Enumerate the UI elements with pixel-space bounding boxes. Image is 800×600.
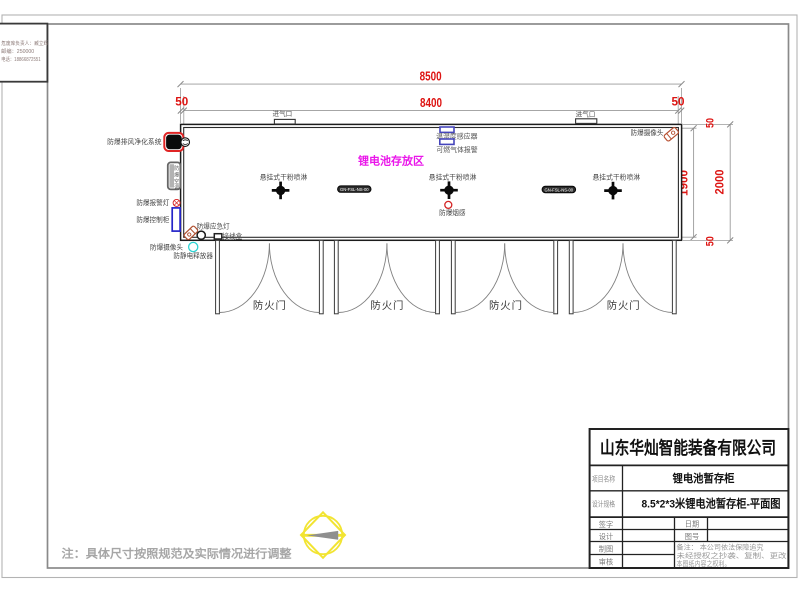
svg-text:设计规格: 设计规格 xyxy=(592,499,616,508)
svg-text:防爆报警灯: 防爆报警灯 xyxy=(136,198,169,207)
svg-text:50: 50 xyxy=(175,95,188,109)
svg-text:调: 调 xyxy=(174,184,179,191)
svg-text:防爆应急灯: 防爆应急灯 xyxy=(197,221,230,230)
svg-text:防: 防 xyxy=(174,165,179,172)
svg-text:危废库负责人：臧立辉: 危废库负责人：臧立辉 xyxy=(1,40,48,47)
svg-text:悬挂式干粉喷淋: 悬挂式干粉喷淋 xyxy=(429,173,477,182)
svg-text:审核: 审核 xyxy=(599,557,613,566)
svg-text:进气口: 进气口 xyxy=(576,110,596,119)
svg-text:备注： 本公司依法保障追究: 备注： 本公司依法保障追究 xyxy=(677,543,764,552)
svg-text:50: 50 xyxy=(672,95,685,109)
svg-text:防爆控制柜: 防爆控制柜 xyxy=(136,215,169,224)
svg-text:锂电池暂存柜: 锂电池暂存柜 xyxy=(673,471,735,485)
svg-text:悬挂式干粉喷淋: 悬挂式干粉喷淋 xyxy=(593,173,641,182)
svg-text:防爆烟感: 防爆烟感 xyxy=(439,208,466,217)
svg-text:GN-FSL-NS-00: GN-FSL-NS-00 xyxy=(340,187,369,192)
svg-text:图号: 图号 xyxy=(685,532,699,541)
svg-text:空: 空 xyxy=(174,178,179,185)
svg-text:项目名称: 项目名称 xyxy=(592,474,615,483)
svg-text:山东华灿智能装备有限公司: 山东华灿智能装备有限公司 xyxy=(600,438,776,458)
svg-text:可燃气体报警: 可燃气体报警 xyxy=(436,145,477,154)
svg-text:防爆排风净化系统: 防爆排风净化系统 xyxy=(107,137,162,146)
svg-text:8400: 8400 xyxy=(420,95,442,110)
svg-text:防静电释放器: 防静电释放器 xyxy=(173,251,213,260)
svg-text:进气口: 进气口 xyxy=(273,109,293,118)
svg-text:8500: 8500 xyxy=(420,69,442,84)
svg-text:防火门: 防火门 xyxy=(370,299,403,312)
svg-text:50: 50 xyxy=(705,118,717,128)
svg-text:2000: 2000 xyxy=(713,169,727,194)
svg-text:防火门: 防火门 xyxy=(607,299,640,312)
svg-text:爆: 爆 xyxy=(174,171,179,178)
svg-text:锂电池存放区: 锂电池存放区 xyxy=(358,155,424,168)
svg-text:防爆摄像头: 防爆摄像头 xyxy=(150,242,183,251)
svg-text:电话：18866872551: 电话：18866872551 xyxy=(1,56,41,63)
svg-text:8.5*2*3米锂电池暂存柜-平面图: 8.5*2*3米锂电池暂存柜-平面图 xyxy=(642,497,781,511)
svg-text:GN-FSL-NS-00: GN-FSL-NS-00 xyxy=(544,188,573,193)
svg-text:悬挂式干粉喷淋: 悬挂式干粉喷淋 xyxy=(260,173,308,182)
svg-text:本图纸内容之权利。: 本图纸内容之权利。 xyxy=(677,559,731,568)
svg-text:签字: 签字 xyxy=(599,520,613,529)
svg-text:未经授权之抄袭、复制、更改: 未经授权之抄袭、复制、更改 xyxy=(677,551,787,560)
svg-text:防火门: 防火门 xyxy=(253,299,286,312)
svg-text:防爆摄像头: 防爆摄像头 xyxy=(631,128,664,137)
svg-text:接线盒: 接线盒 xyxy=(223,231,243,240)
svg-text:日期: 日期 xyxy=(685,520,699,529)
svg-text:设计: 设计 xyxy=(599,532,613,541)
svg-text:50: 50 xyxy=(705,236,717,246)
svg-text:邮编：250000: 邮编：250000 xyxy=(1,48,34,55)
svg-text:防火门: 防火门 xyxy=(489,299,522,312)
svg-text:注：具体尺寸按照规范及实际情况进行调整: 注：具体尺寸按照规范及实际情况进行调整 xyxy=(62,547,293,561)
svg-text:制图: 制图 xyxy=(599,545,613,554)
